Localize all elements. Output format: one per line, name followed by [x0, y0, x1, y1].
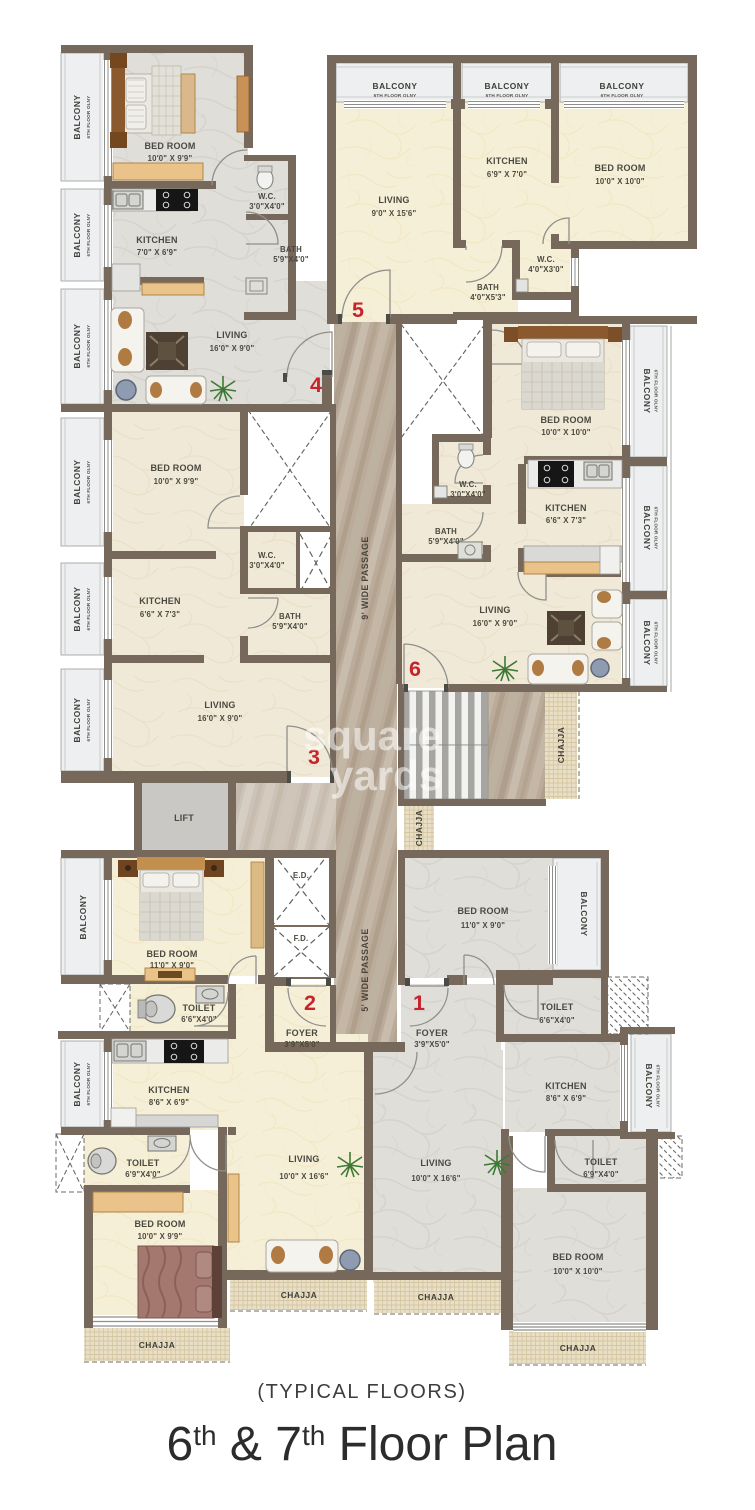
svg-text:7'0" X 6'9": 7'0" X 6'9" — [137, 248, 177, 257]
svg-text:6'9"X4'0": 6'9"X4'0" — [125, 1170, 161, 1179]
svg-text:6TH FLOOR OLNY: 6TH FLOOR OLNY — [86, 325, 91, 368]
svg-text:9' WIDE PASSAGE: 9' WIDE PASSAGE — [360, 536, 370, 619]
svg-text:3'0"X4'0": 3'0"X4'0" — [249, 561, 285, 570]
svg-text:FOYER: FOYER — [416, 1028, 448, 1038]
svg-text:BED ROOM: BED ROOM — [134, 1219, 185, 1229]
svg-text:FOYER: FOYER — [286, 1028, 318, 1038]
svg-text:W.C.: W.C. — [258, 192, 276, 201]
svg-text:TOILET: TOILET — [182, 1003, 215, 1013]
svg-text:16'0" X 9'0": 16'0" X 9'0" — [210, 344, 255, 353]
svg-text:BALCONY: BALCONY — [642, 621, 652, 666]
svg-text:BALCONY: BALCONY — [600, 81, 645, 91]
svg-text:CHAJJA: CHAJJA — [281, 1290, 318, 1300]
svg-text:BED ROOM: BED ROOM — [457, 906, 508, 916]
svg-text:5'9"X4'0": 5'9"X4'0" — [428, 537, 464, 546]
svg-text:3'0"X4'0": 3'0"X4'0" — [249, 202, 285, 211]
svg-text:6TH FLOOR OLNY: 6TH FLOOR OLNY — [374, 93, 417, 98]
svg-text:4'0"X5'3": 4'0"X5'3" — [470, 293, 506, 302]
svg-text:2: 2 — [304, 991, 316, 1015]
svg-text:BALCONY: BALCONY — [72, 587, 82, 632]
svg-text:BALCONY: BALCONY — [72, 213, 82, 258]
svg-text:W.C.: W.C. — [459, 480, 477, 489]
svg-text:TOILET: TOILET — [126, 1158, 159, 1168]
svg-text:BED ROOM: BED ROOM — [552, 1252, 603, 1262]
svg-text:6'6" X 7'3": 6'6" X 7'3" — [140, 610, 180, 619]
svg-text:TOILET: TOILET — [584, 1157, 617, 1167]
svg-text:6TH FLOOR OLNY: 6TH FLOOR OLNY — [486, 93, 529, 98]
svg-text:BED ROOM: BED ROOM — [594, 163, 645, 173]
svg-text:KITCHEN: KITCHEN — [139, 596, 180, 606]
svg-text:BALCONY: BALCONY — [78, 895, 88, 940]
svg-text:5'9"X4'0": 5'9"X4'0" — [272, 622, 308, 631]
svg-text:8'6" X 6'9": 8'6" X 6'9" — [149, 1098, 189, 1107]
svg-text:BALCONY: BALCONY — [485, 81, 530, 91]
svg-text:TOILET: TOILET — [540, 1002, 573, 1012]
svg-text:CHAJJA: CHAJJA — [139, 1340, 176, 1350]
svg-text:E.D.: E.D. — [293, 871, 309, 880]
svg-text:11'0" X 9'0": 11'0" X 9'0" — [150, 961, 194, 970]
svg-text:11'0" X 9'0": 11'0" X 9'0" — [461, 921, 505, 930]
svg-text:BALCONY: BALCONY — [72, 1062, 82, 1107]
svg-text:BALCONY: BALCONY — [642, 369, 652, 414]
svg-text:KITCHEN: KITCHEN — [136, 235, 177, 245]
svg-text:KITCHEN: KITCHEN — [545, 1081, 586, 1091]
svg-text:BALCONY: BALCONY — [72, 460, 82, 505]
svg-text:6TH FLOOR OLNY: 6TH FLOOR OLNY — [86, 1063, 91, 1106]
svg-text:BALCONY: BALCONY — [373, 81, 418, 91]
svg-text:BED ROOM: BED ROOM — [150, 463, 201, 473]
svg-text:(TYPICAL FLOORS): (TYPICAL FLOORS) — [257, 1381, 466, 1403]
svg-text:16'0" X 9'0": 16'0" X 9'0" — [473, 619, 518, 628]
svg-text:10'0" X 10'0": 10'0" X 10'0" — [553, 1267, 602, 1276]
svg-text:CHAJJA: CHAJJA — [414, 810, 424, 847]
svg-text:10'0" X 16'6": 10'0" X 16'6" — [411, 1174, 460, 1183]
svg-text:BED ROOM: BED ROOM — [144, 141, 195, 151]
svg-text:CHAJJA: CHAJJA — [560, 1343, 597, 1353]
svg-text:1: 1 — [413, 991, 425, 1015]
svg-text:BALCONY: BALCONY — [644, 1064, 654, 1109]
svg-text:9'0" X 15'6": 9'0" X 15'6" — [372, 209, 417, 218]
svg-text:6TH FLOOR OLNY: 6TH FLOOR OLNY — [656, 1065, 661, 1108]
svg-text:BALCONY: BALCONY — [72, 324, 82, 369]
svg-text:BALCONY: BALCONY — [642, 506, 652, 551]
svg-text:6'6"X4'0": 6'6"X4'0" — [539, 1016, 575, 1025]
svg-text:BED ROOM: BED ROOM — [540, 415, 591, 425]
svg-text:6TH FLOOR OLNY: 6TH FLOOR OLNY — [654, 507, 659, 550]
svg-text:4: 4 — [310, 373, 322, 397]
svg-text:3'0"X4'0": 3'0"X4'0" — [450, 490, 486, 499]
svg-text:CHAJJA: CHAJJA — [418, 1292, 455, 1302]
svg-text:6TH FLOOR OLNY: 6TH FLOOR OLNY — [86, 588, 91, 631]
svg-text:BATH: BATH — [280, 245, 302, 254]
svg-text:LIVING: LIVING — [204, 700, 235, 710]
svg-text:BED ROOM: BED ROOM — [146, 949, 197, 959]
svg-text:LIVING: LIVING — [216, 330, 247, 340]
svg-text:6TH FLOOR OLNY: 6TH FLOOR OLNY — [601, 93, 644, 98]
svg-text:LIVING: LIVING — [420, 1158, 451, 1168]
svg-text:yards: yards — [330, 752, 442, 799]
svg-text:10'0" X 9'9": 10'0" X 9'9" — [148, 154, 193, 163]
svg-text:6TH FLOOR OLNY: 6TH FLOOR OLNY — [654, 370, 659, 413]
svg-text:BALCONY: BALCONY — [72, 698, 82, 743]
svg-text:6TH FLOOR OLNY: 6TH FLOOR OLNY — [86, 699, 91, 742]
svg-text:10'0" X 16'6": 10'0" X 16'6" — [279, 1172, 328, 1181]
svg-text:W.C.: W.C. — [537, 255, 555, 264]
svg-text:5' WIDE PASSAGE: 5' WIDE PASSAGE — [360, 928, 370, 1011]
svg-text:LIVING: LIVING — [479, 605, 510, 615]
svg-text:6'6"X4'0": 6'6"X4'0" — [181, 1015, 217, 1024]
svg-text:6th & 7th Floor Plan: 6th & 7th Floor Plan — [167, 1418, 558, 1471]
svg-text:6'6" X 7'3": 6'6" X 7'3" — [546, 516, 586, 525]
svg-text:4'0"X3'0": 4'0"X3'0" — [528, 265, 564, 274]
svg-text:6TH FLOOR OLNY: 6TH FLOOR OLNY — [86, 214, 91, 257]
svg-text:KITCHEN: KITCHEN — [486, 156, 527, 166]
svg-text:CHAJJA: CHAJJA — [556, 727, 566, 764]
svg-text:10'0" X 10'0": 10'0" X 10'0" — [541, 428, 590, 437]
svg-text:BATH: BATH — [435, 527, 457, 536]
svg-text:10'0" X 9'9": 10'0" X 9'9" — [154, 477, 199, 486]
svg-text:6'9" X 7'0": 6'9" X 7'0" — [487, 170, 527, 179]
svg-text:3'9"X5'0": 3'9"X5'0" — [414, 1040, 450, 1049]
svg-text:LIFT: LIFT — [174, 813, 194, 823]
svg-text:BALCONY: BALCONY — [72, 95, 82, 140]
svg-text:LIVING: LIVING — [378, 195, 409, 205]
svg-text:16'0" X 9'0": 16'0" X 9'0" — [198, 714, 243, 723]
svg-text:6: 6 — [409, 657, 421, 681]
svg-text:KITCHEN: KITCHEN — [545, 503, 586, 513]
svg-text:5'9"X4'0": 5'9"X4'0" — [273, 255, 309, 264]
svg-text:6'9"X4'0": 6'9"X4'0" — [583, 1170, 619, 1179]
svg-text:6TH FLOOR OLNY: 6TH FLOOR OLNY — [654, 622, 659, 665]
svg-text:8'6" X 6'9": 8'6" X 6'9" — [546, 1094, 586, 1103]
svg-text:5: 5 — [352, 298, 364, 322]
svg-text:W.C.: W.C. — [258, 551, 276, 560]
svg-text:3'9"X5'0": 3'9"X5'0" — [284, 1040, 320, 1049]
svg-text:BATH: BATH — [279, 612, 301, 621]
svg-text:10'0" X 9'9": 10'0" X 9'9" — [138, 1232, 183, 1241]
svg-text:F.D.: F.D. — [294, 934, 309, 943]
svg-text:LIVING: LIVING — [288, 1154, 319, 1164]
svg-text:KITCHEN: KITCHEN — [148, 1085, 189, 1095]
svg-text:6TH FLOOR OLNY: 6TH FLOOR OLNY — [86, 461, 91, 504]
svg-text:BATH: BATH — [477, 283, 499, 292]
svg-text:6TH FLOOR OLNY: 6TH FLOOR OLNY — [86, 96, 91, 139]
svg-text:10'0" X 10'0": 10'0" X 10'0" — [595, 177, 644, 186]
svg-text:BALCONY: BALCONY — [579, 892, 589, 937]
